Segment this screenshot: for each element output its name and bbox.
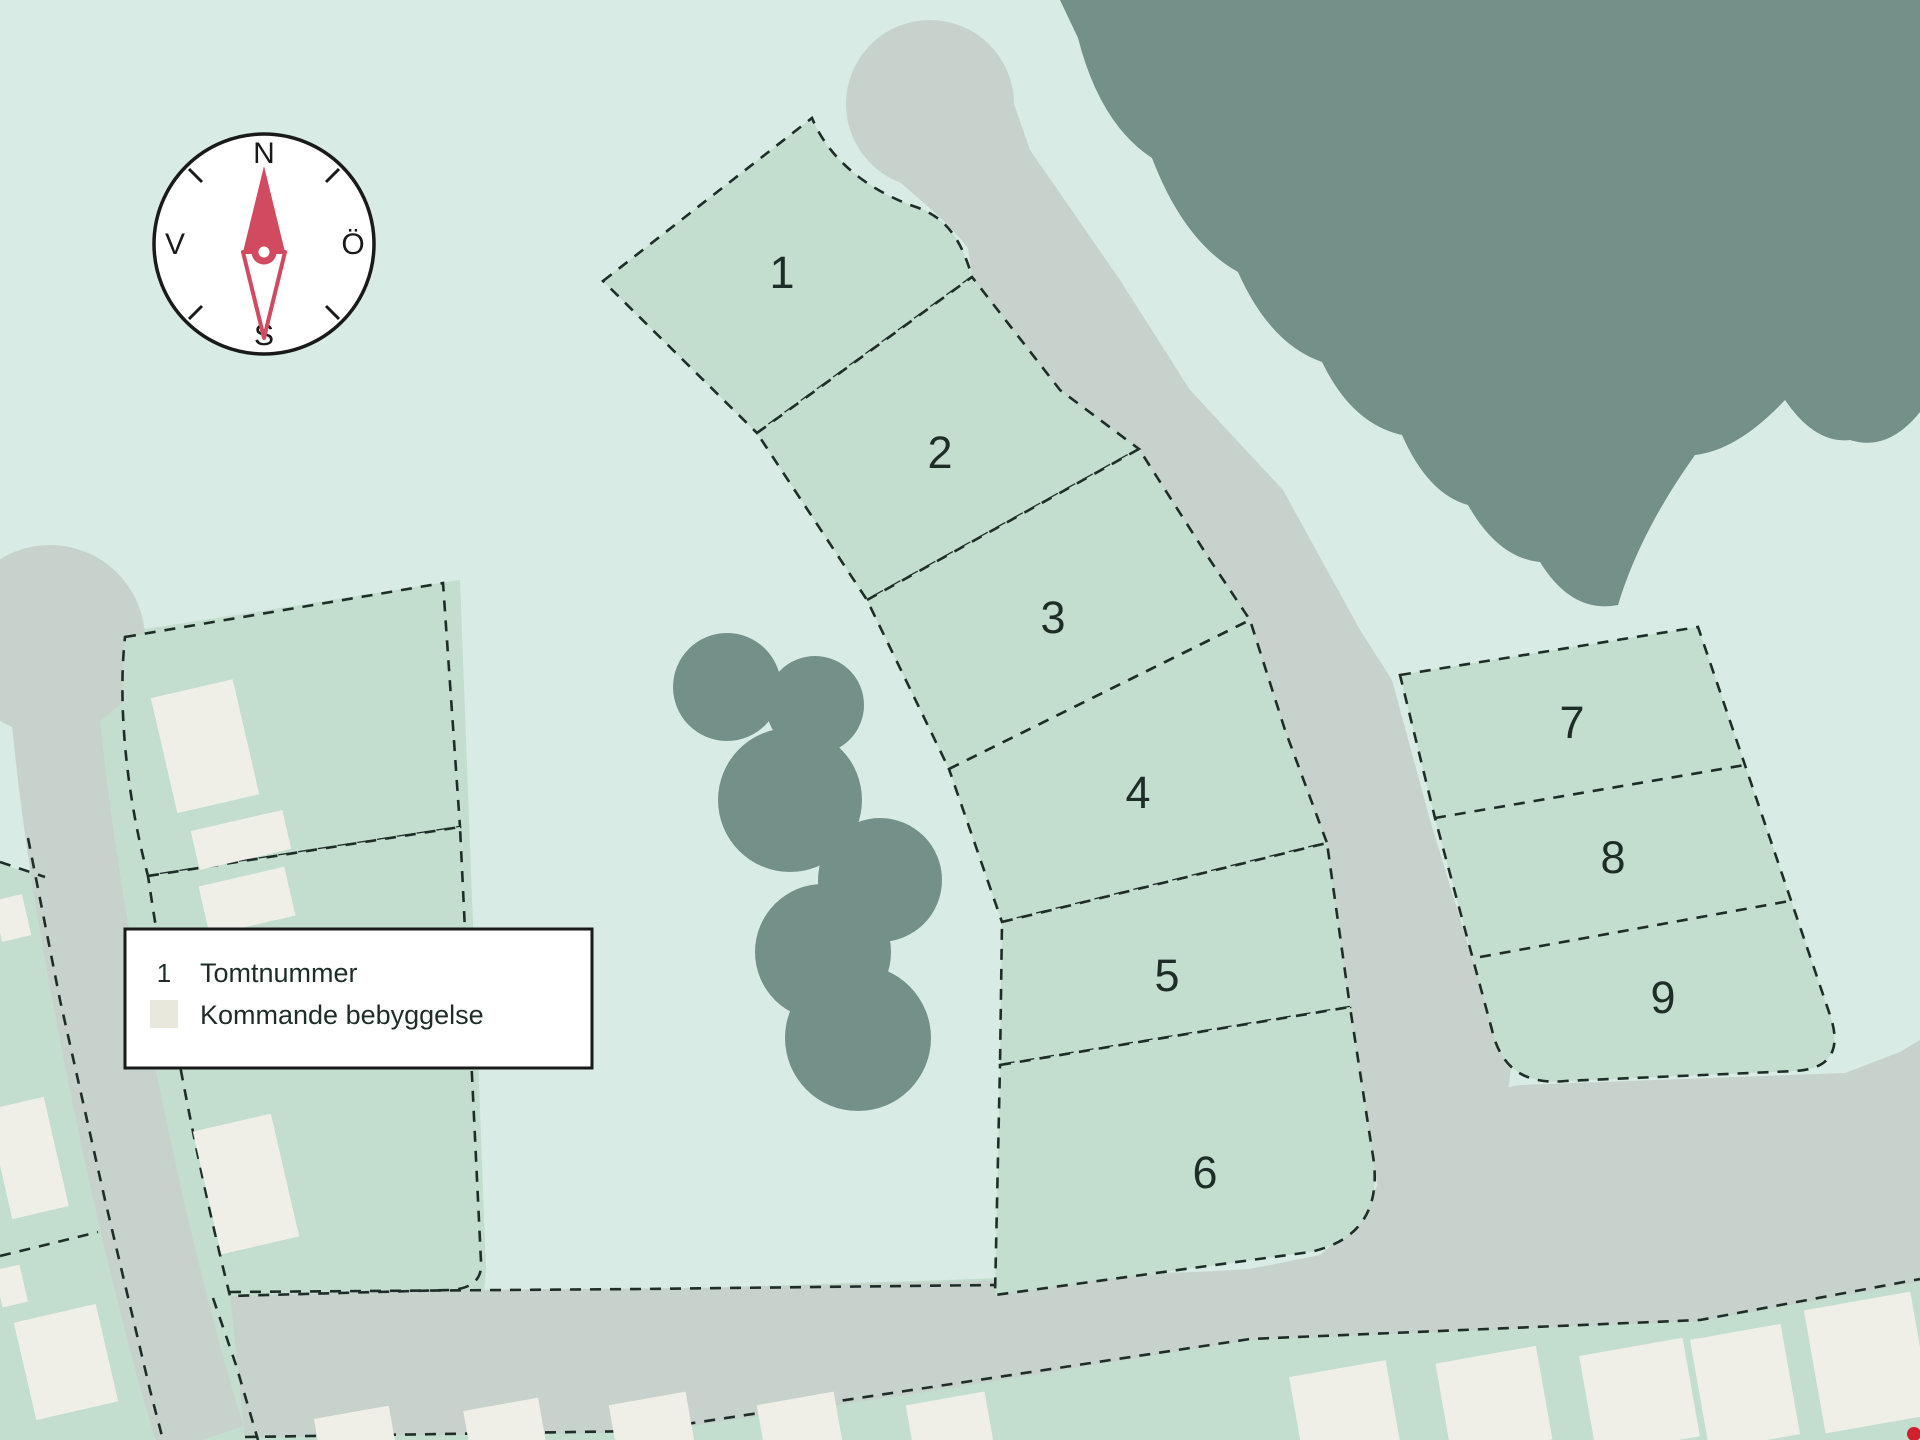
map-svg: 1 2 3 4 5 6 7 8 9 N Ö S V 1 Tomtnummer K… <box>0 0 1920 1440</box>
compass-hub-inner <box>259 247 270 258</box>
legend-symbol-plot-number: 1 <box>157 958 171 988</box>
plot-number-7: 7 <box>1559 697 1584 748</box>
compass-letter-o: Ö <box>341 228 364 261</box>
compass-icon: N Ö S V <box>154 134 374 354</box>
legend: 1 Tomtnummer Kommande bebyggelse <box>125 929 592 1068</box>
plot-number-8: 8 <box>1600 832 1625 883</box>
plot-number-9: 9 <box>1650 972 1675 1023</box>
plot-number-1: 1 <box>769 247 794 298</box>
plot-number-2: 2 <box>927 427 952 478</box>
building <box>1579 1338 1700 1440</box>
site-plan-map: 1 2 3 4 5 6 7 8 9 N Ö S V 1 Tomtnummer K… <box>0 0 1920 1440</box>
building <box>1690 1324 1800 1440</box>
legend-box <box>125 929 592 1068</box>
plot-number-5: 5 <box>1154 950 1179 1001</box>
compass-letter-v: V <box>165 228 185 261</box>
legend-label-kommande: Kommande bebyggelse <box>200 1000 484 1030</box>
plot-number-6: 6 <box>1192 1147 1217 1198</box>
compass-letter-n: N <box>253 137 275 170</box>
legend-label-tomtnummer: Tomtnummer <box>200 958 358 988</box>
plot-number-4: 4 <box>1125 767 1150 818</box>
plot-number-3: 3 <box>1040 592 1065 643</box>
legend-swatch-upcoming-icon <box>150 1000 178 1028</box>
